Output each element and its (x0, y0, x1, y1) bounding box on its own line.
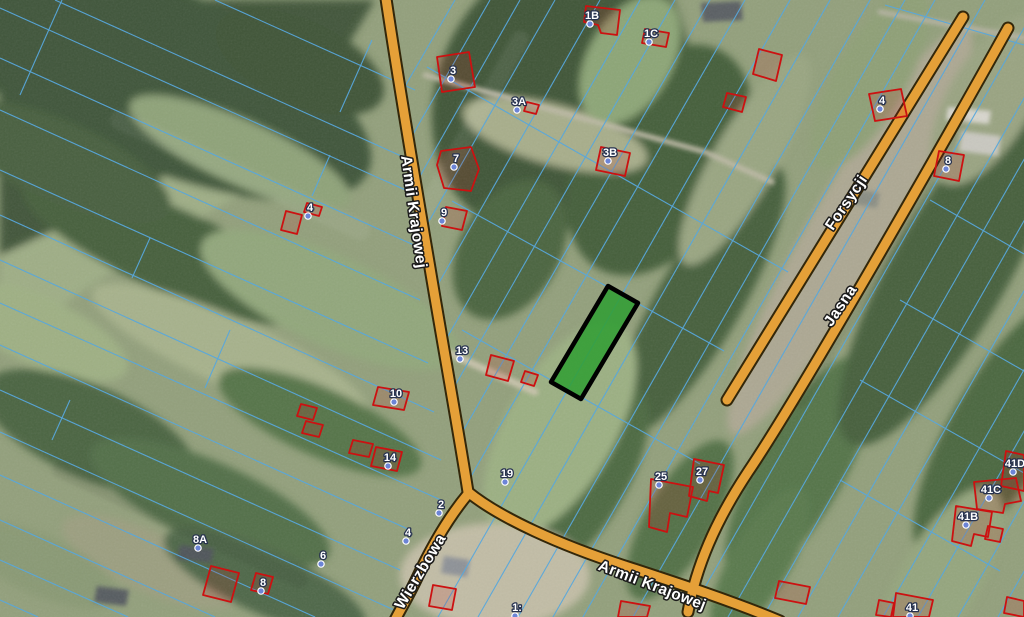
building-outline (297, 404, 317, 420)
building-outline (753, 49, 782, 81)
parcel-number-label: 3 (450, 65, 456, 77)
map-canvas[interactable]: Armii KrajowejArmii KrajowejWierzbowaFor… (0, 0, 1024, 617)
parcel-number-label: 25 (655, 471, 667, 483)
parcel-number-label: 41D (1005, 458, 1024, 470)
parcel-number-label: 4 (307, 202, 314, 214)
map-viewport[interactable]: Armii KrajowejArmii KrajowejWierzbowaFor… (0, 0, 1024, 617)
parcel-number-label: 9 (441, 207, 447, 219)
building-outline (524, 102, 539, 114)
building-outline (985, 526, 1003, 542)
building-outline (876, 600, 894, 617)
parcel-number-label: 4 (879, 95, 886, 107)
parcel-number-label: 1B (585, 10, 599, 22)
parcel-number-label: 8 (945, 155, 951, 167)
parcel-number-label: 27 (696, 466, 708, 478)
building-outline (1004, 597, 1024, 617)
parcel-number-label: 3A (512, 96, 526, 108)
building-outline (302, 421, 323, 437)
building-outline (349, 440, 373, 457)
parcel-number-label: 1: (512, 602, 522, 614)
parcel-number-label: 14 (384, 452, 397, 464)
parcel-number-label: 41B (958, 511, 978, 523)
parcel-number-label: 4 (405, 527, 412, 539)
parcel-number-label: 41 (906, 602, 918, 614)
parcel-number-label: 8A (193, 534, 207, 546)
parcel-number-label: 10 (390, 388, 402, 400)
building-outline (869, 89, 907, 121)
parcel-number-label: 41C (981, 484, 1001, 496)
parcel-number-label: 8 (260, 577, 266, 589)
parcel-number-label: 1C (644, 28, 658, 40)
building-outline (429, 585, 456, 610)
parcel-number-label: 3B (603, 147, 617, 159)
parcel-number-label: 2 (438, 499, 444, 511)
parcel-number-label: 19 (501, 468, 513, 480)
parcel-number-label: 6 (320, 550, 326, 562)
parcel-number-label: 7 (453, 153, 459, 165)
parcel-number-label: 13 (456, 345, 468, 357)
